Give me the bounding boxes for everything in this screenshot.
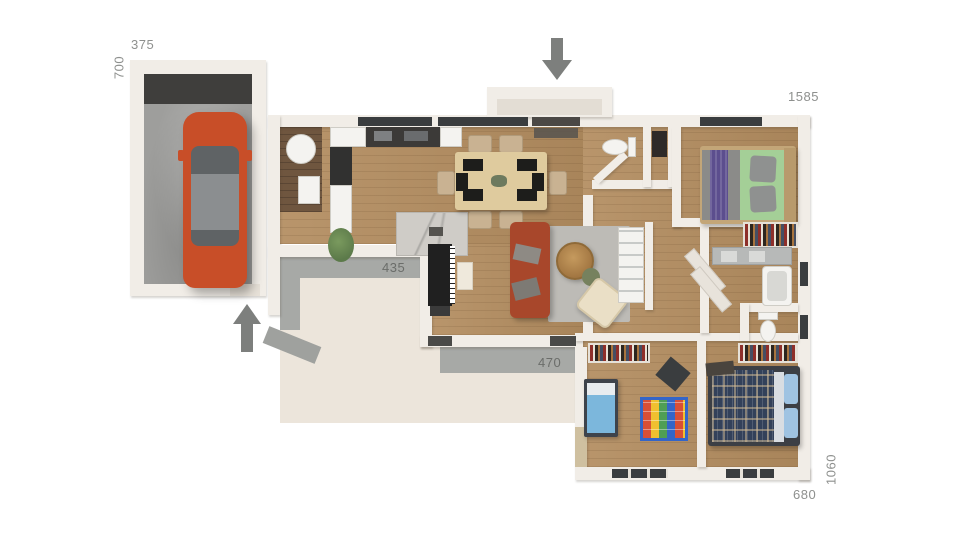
bathroom-window <box>800 262 808 286</box>
dining-window <box>438 117 528 126</box>
bedroom1-headboard <box>784 148 796 222</box>
living-sliding-door-1 <box>428 336 452 346</box>
piano <box>428 244 452 306</box>
master-plaid-duvet <box>712 370 774 442</box>
kitchen-sink <box>374 131 392 141</box>
dimension-terrace-bottom: 470 <box>538 355 561 370</box>
island-decor <box>429 227 443 236</box>
bedroom-divider-wall <box>697 341 706 467</box>
utility-appliance <box>298 176 320 204</box>
storage-shelf-unit <box>652 131 667 157</box>
entry-arrow-shaft <box>551 38 563 61</box>
kitchen-counter-left <box>330 185 352 233</box>
bedroom1-pillow <box>749 185 776 212</box>
placemat <box>456 173 468 191</box>
wc2-window <box>800 315 808 339</box>
placemat <box>517 159 537 171</box>
entry-arrow-icon <box>542 38 572 80</box>
kitchen-counter-right-top <box>440 127 462 147</box>
toilet-1-bowl <box>602 139 628 155</box>
sink <box>721 251 737 262</box>
dining-chair <box>468 135 492 153</box>
sofa-cushion <box>513 243 542 264</box>
hall-unit-wall <box>645 222 653 310</box>
wc2-west-wall <box>740 303 749 341</box>
bedroom1-west-wall <box>672 127 681 227</box>
entry-door <box>532 117 580 126</box>
dining-chair <box>468 211 492 229</box>
master-pillow <box>784 408 798 438</box>
master-closet <box>738 343 798 363</box>
master-pillow <box>784 374 798 404</box>
garage-entry-arrow-head <box>233 304 261 324</box>
wing-south-wall <box>575 467 810 480</box>
dimension-house-top-width: 1585 <box>788 89 819 104</box>
kitchen-stove <box>404 131 428 141</box>
sofa <box>510 222 550 318</box>
entry-porch-recess <box>497 99 602 115</box>
dimension-terrace-side: 435 <box>382 260 405 275</box>
garage-entry-arrow-shaft <box>241 323 253 352</box>
kids-room-window <box>612 469 668 478</box>
bathtub <box>762 266 792 306</box>
dimension-wing-bottom-width: 680 <box>793 487 816 502</box>
placemat <box>532 173 544 191</box>
toilet-2-bowl <box>760 320 776 342</box>
dining-chair <box>499 135 523 153</box>
play-mat <box>640 397 688 441</box>
floor-plan: 375 700 1585 435 470 680 1060 <box>0 0 960 540</box>
left-wall-kitchen <box>268 115 280 257</box>
kitchen-counter-left-top <box>330 127 366 147</box>
hall-dresser-unit <box>618 227 644 303</box>
sofa-cushion <box>511 277 541 301</box>
kids-pillow <box>587 383 615 395</box>
piano-keys <box>450 246 455 304</box>
terrace-shadow-left <box>280 257 300 330</box>
bedroom1-window <box>700 117 762 126</box>
dining-chair <box>437 171 455 195</box>
table-centerpiece <box>491 175 507 187</box>
garage-back-wall <box>144 74 252 104</box>
car-mirror-left <box>178 150 184 161</box>
entry-arrow-head <box>542 60 572 80</box>
wc1-divider-wall <box>643 127 651 187</box>
bathroom-vanity <box>712 247 792 265</box>
sink <box>749 251 765 262</box>
wc1-south-wall <box>592 180 676 189</box>
garage-stub-wall <box>268 257 280 315</box>
toilet-2-tank <box>758 312 778 320</box>
car <box>183 112 247 288</box>
bedroom1-purple-runner <box>710 150 728 220</box>
dining-chair <box>549 171 567 195</box>
dimension-wing-right-depth: 1060 <box>824 450 839 490</box>
living-sliding-door-2 <box>550 336 576 346</box>
bedroom1-pillow <box>749 155 776 182</box>
placemat <box>463 159 483 171</box>
garage-entry-arrow-icon <box>233 304 261 352</box>
master-sheet-fold <box>774 372 784 442</box>
piano-bench <box>457 262 473 290</box>
kitchen-tall-unit <box>330 147 352 185</box>
kids-closet <box>588 343 650 363</box>
dimension-garage-depth: 700 <box>112 48 127 88</box>
toilet-1-tank <box>628 137 636 157</box>
car-mirror-right <box>246 150 252 161</box>
kitchen-window <box>358 117 432 126</box>
bedroom1-closet <box>743 222 798 248</box>
dimension-garage-width: 375 <box>131 37 154 52</box>
kitchen-counter-dark <box>366 127 440 147</box>
bathtub-basin <box>767 271 787 301</box>
dining-table <box>455 152 547 210</box>
master-room-window <box>726 469 774 478</box>
av-unit <box>430 306 450 316</box>
terrace-shadow-bottom <box>440 347 583 373</box>
kitchen-plant <box>328 228 354 262</box>
entry-doormat <box>534 128 578 138</box>
car-roof <box>191 174 239 230</box>
water-heater <box>286 134 316 164</box>
